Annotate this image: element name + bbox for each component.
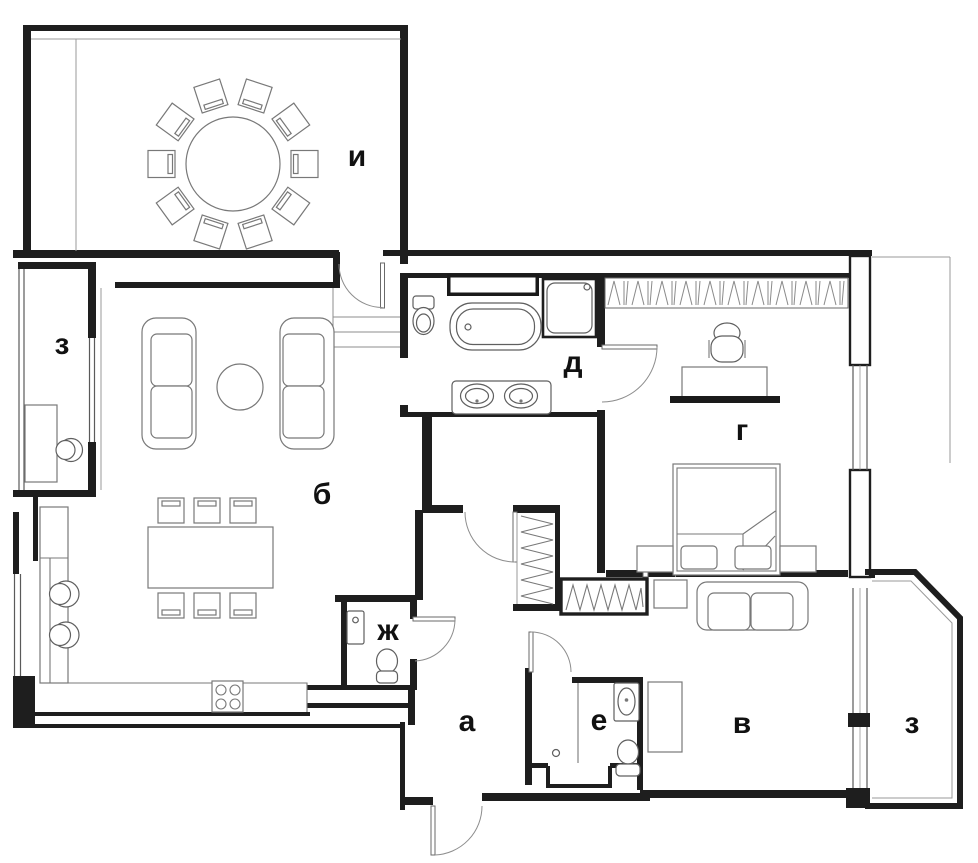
- coffee-table: [217, 364, 263, 410]
- toilet: [413, 296, 434, 335]
- sofa-left: [142, 318, 196, 449]
- room-second: в: [648, 580, 808, 752]
- side-table: [654, 580, 687, 608]
- shower-room-toilet: [616, 740, 640, 776]
- bedroom-wardrobe: [605, 278, 848, 308]
- room-label-bathroom: д: [563, 346, 582, 379]
- room-hallway: а: [459, 705, 476, 738]
- double-vanity: [452, 381, 551, 414]
- bathtub: [450, 303, 541, 350]
- double-bed: [673, 464, 780, 575]
- stove: [212, 681, 243, 712]
- bathroom-cabinet-inner: [451, 278, 536, 293]
- entry-door: [431, 806, 482, 855]
- room-bathroom-main: д: [413, 274, 596, 414]
- room-label-hallway: а: [459, 705, 476, 738]
- room-label-balcony-left: з: [55, 328, 70, 361]
- dining-chair: [230, 593, 256, 618]
- dining-chair: [230, 498, 256, 523]
- floor-plan-canvas: и з: [0, 0, 978, 863]
- room-balcony-right: з: [905, 707, 920, 740]
- shower-cabin: [543, 279, 596, 337]
- wc-toilet: [377, 649, 398, 683]
- room-balcony-left: з: [25, 328, 83, 482]
- room-label-bedroom: г: [736, 414, 749, 447]
- room-label-terrace: и: [348, 140, 366, 173]
- room-label-shower: е: [591, 704, 608, 737]
- dining-chair: [194, 593, 220, 618]
- bar-stool: [50, 622, 80, 648]
- room-living: б: [40, 318, 334, 712]
- pillow: [735, 546, 771, 569]
- terrace-steps: [333, 288, 400, 347]
- room-terrace: и: [148, 79, 366, 249]
- second-room-sofa: [697, 582, 808, 630]
- dining-table: [148, 527, 273, 588]
- bedroom-door: [602, 345, 657, 402]
- terrace-door: [339, 263, 385, 308]
- balcony-desk: [25, 405, 57, 482]
- room-label-living: б: [313, 478, 332, 511]
- room-label-wc: ж: [376, 614, 399, 647]
- room-bedroom: г: [605, 278, 848, 575]
- shower-drain: [553, 750, 560, 757]
- second-room-desk: [648, 682, 682, 752]
- room-label-balcony-right: з: [905, 707, 920, 740]
- hall-closets: [517, 513, 647, 614]
- balcony-stool: [56, 439, 83, 462]
- floor-plan: и з: [0, 0, 978, 863]
- wc-sink: [347, 611, 364, 644]
- wc-door: [413, 617, 455, 661]
- closet-horizontal: [561, 579, 647, 614]
- nightstand: [780, 546, 816, 572]
- nightstand: [637, 546, 673, 572]
- round-table: [186, 117, 280, 211]
- shower-room-sink: [614, 683, 639, 721]
- dining-chair: [158, 593, 184, 618]
- dining-set: [148, 498, 273, 618]
- sofa-right: [280, 318, 334, 449]
- bar-stool: [50, 581, 80, 607]
- office-chair: [709, 323, 745, 362]
- closet-hangers-vertical: [521, 516, 553, 604]
- room-label-second: в: [733, 707, 751, 740]
- room-shower: е: [553, 683, 641, 776]
- bedroom-desk: [682, 367, 767, 397]
- pillow: [681, 546, 717, 569]
- room-wc: ж: [347, 611, 399, 683]
- bedroom-console: [670, 396, 780, 403]
- kitchen-counter-bottom: [68, 683, 307, 712]
- dining-chair: [158, 498, 184, 523]
- shower-room-door: [529, 632, 571, 672]
- dining-chair: [194, 498, 220, 523]
- living-room-door: [465, 512, 517, 562]
